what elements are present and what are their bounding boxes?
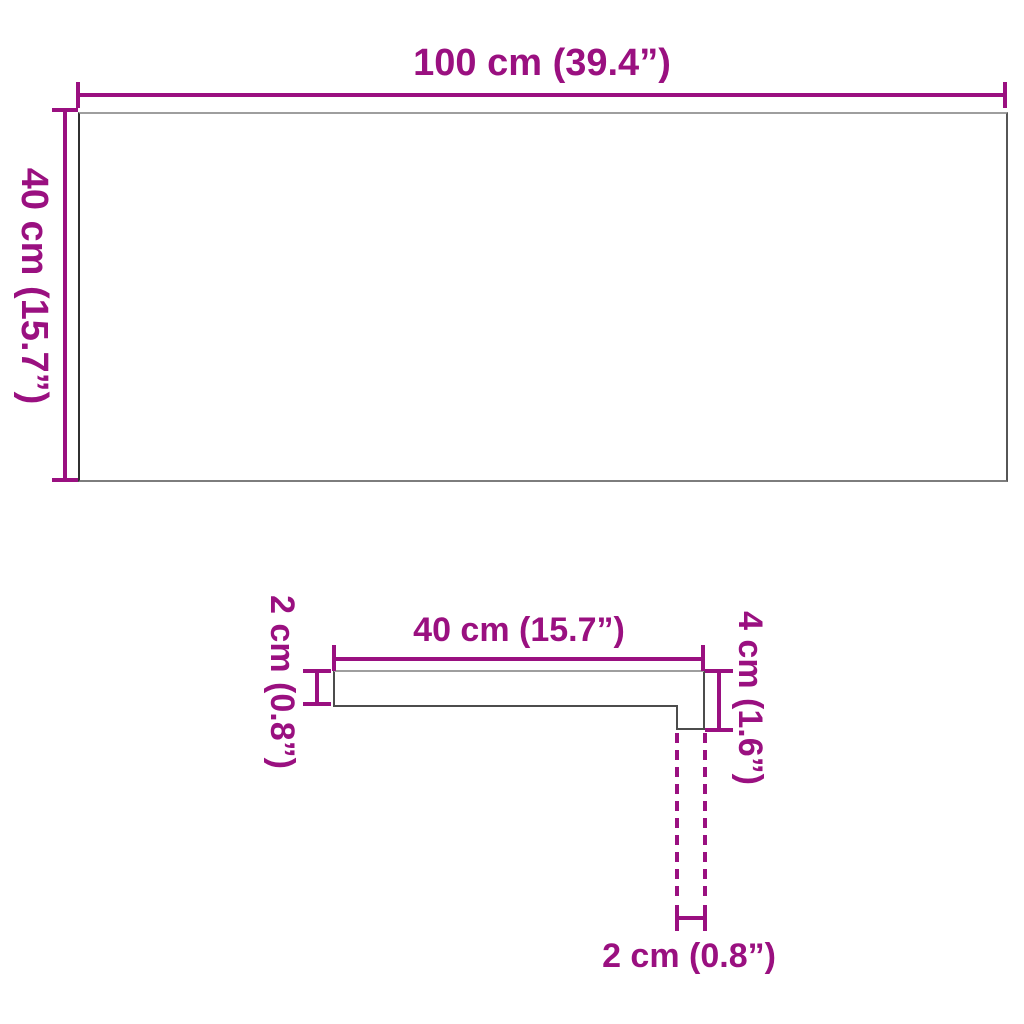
height-dimension-cap-bottom — [52, 478, 78, 482]
thickness-dimension-line — [315, 672, 319, 703]
front-height-dimension-label: 4 cm (1.6”) — [733, 611, 767, 785]
lip-dimension-label: 2 cm (0.8”) — [602, 939, 776, 973]
dimension-diagram: 100 cm (39.4”) 40 cm (15.7”) 40 cm (15.7… — [0, 0, 1024, 1024]
height-dimension-line — [63, 110, 67, 482]
side-profile-shape — [330, 667, 708, 733]
lip-extension-line-right — [703, 733, 707, 903]
height-dimension-cap-top — [52, 108, 78, 112]
depth-dimension-cap-right — [701, 645, 705, 671]
width-dimension-cap-left — [76, 82, 80, 108]
lip-extension-line-left — [675, 733, 679, 903]
height-dimension-label: 40 cm (15.7”) — [15, 168, 53, 405]
depth-dimension-line — [334, 657, 705, 661]
top-view-panel — [78, 112, 1008, 482]
thickness-dimension-label: 2 cm (0.8”) — [265, 595, 299, 769]
width-dimension-line — [78, 93, 1007, 97]
front-height-dimension-line — [717, 672, 721, 730]
depth-dimension-cap-left — [332, 645, 336, 671]
width-dimension-label: 100 cm (39.4”) — [413, 44, 671, 82]
thickness-dimension-cap-bottom — [303, 702, 331, 706]
front-height-dimension-cap-bottom — [705, 728, 733, 732]
lip-dimension-line — [677, 916, 707, 920]
thickness-dimension-cap-top — [303, 669, 331, 673]
depth-dimension-label: 40 cm (15.7”) — [413, 613, 625, 647]
width-dimension-cap-right — [1003, 82, 1007, 108]
front-height-dimension-cap-top — [705, 669, 733, 673]
